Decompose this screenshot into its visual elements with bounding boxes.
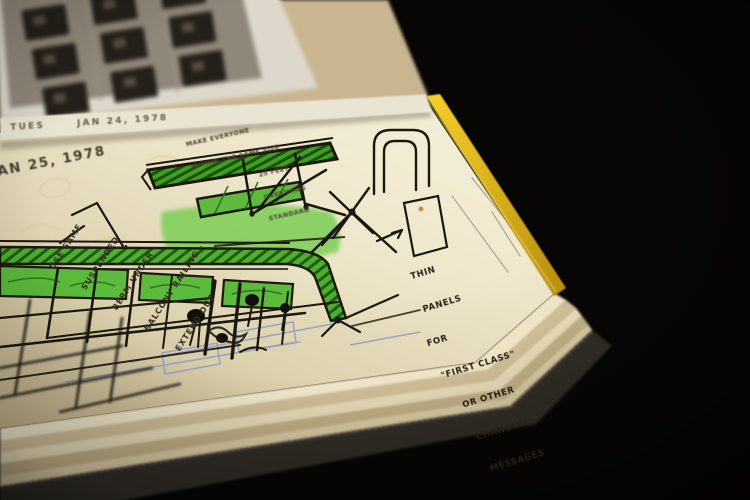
- annotation-line: FOR: [426, 316, 507, 351]
- annotation-line: OR OTHER: [461, 382, 527, 412]
- photograph-of-sketchbook: TUES JAN 24, 1978 AN 25, 1978 MAKE EVERY…: [0, 0, 750, 500]
- annotation-line: PANELS: [422, 283, 497, 316]
- annotation-line: THIN: [410, 250, 487, 284]
- annotation-line: STANDARD: [268, 207, 312, 224]
- annotation-line: "FIRST CLASS": [440, 349, 517, 383]
- annotation-line: MESSAGES: [489, 448, 547, 476]
- annotation-line: CHANGING: [475, 415, 537, 444]
- annotation-line: OVERHANG: [263, 184, 307, 201]
- annotation-line: 25 FEET: [258, 162, 302, 179]
